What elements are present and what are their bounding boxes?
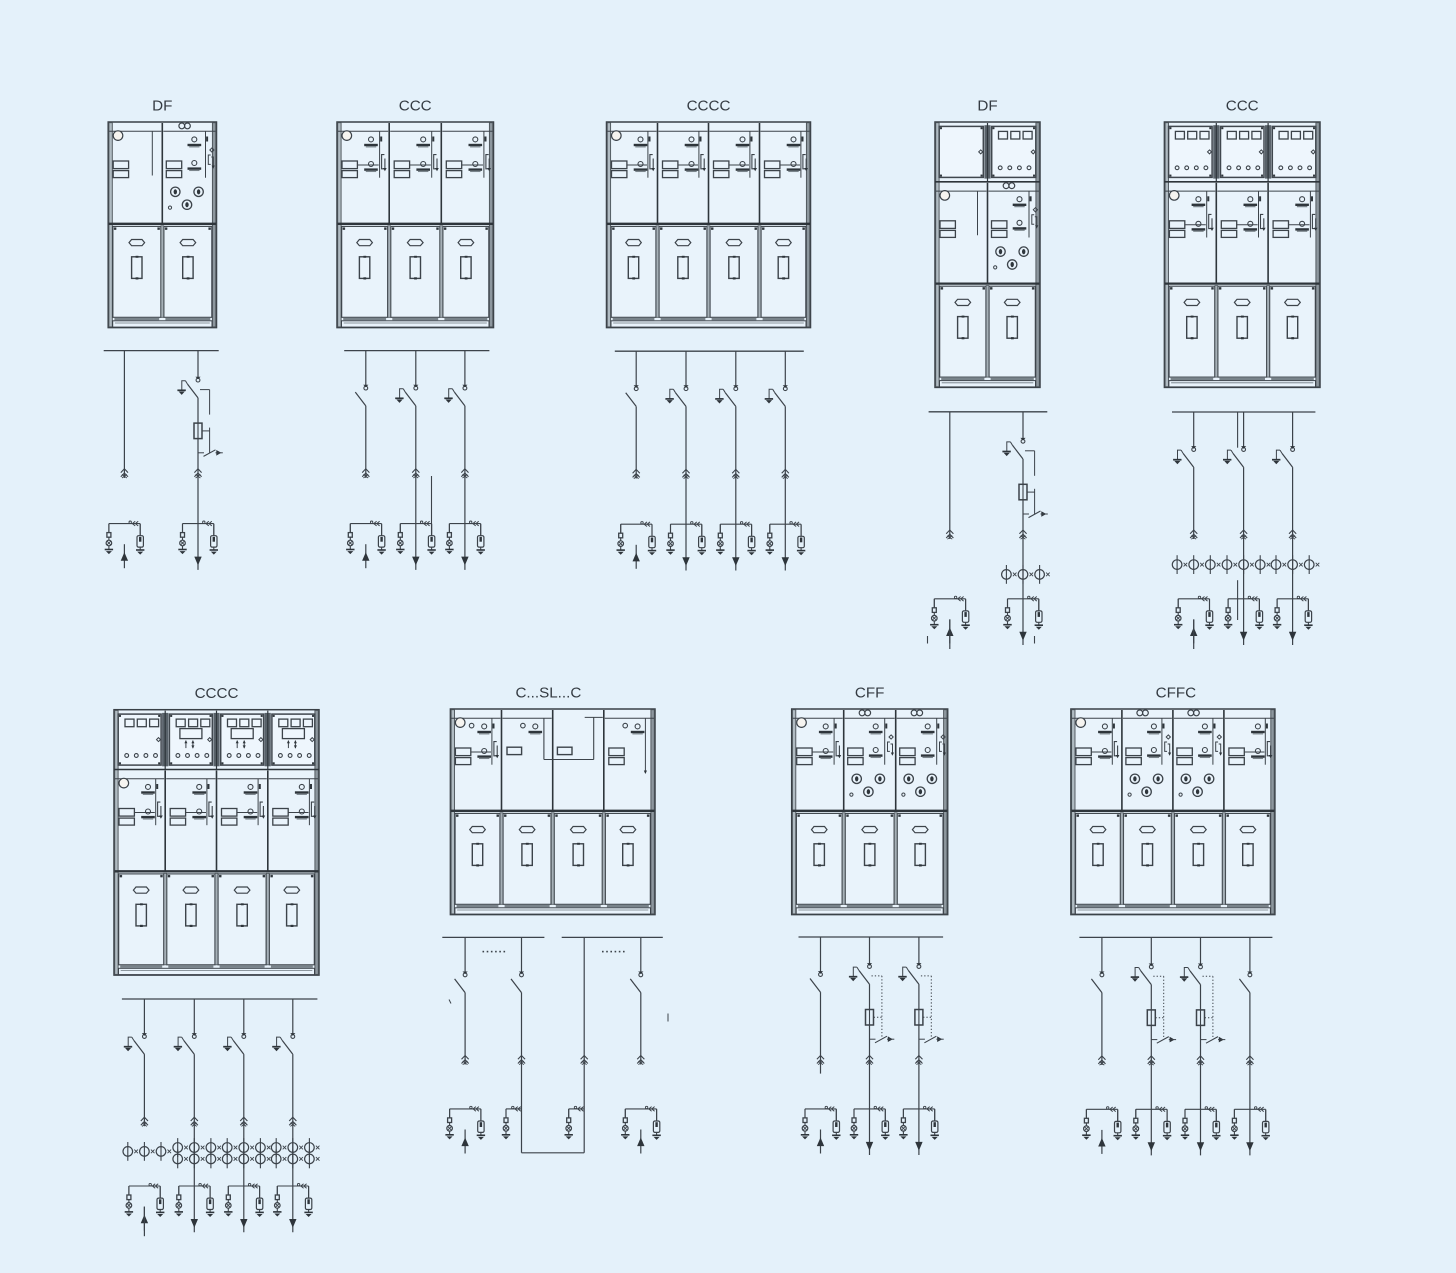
svg-text:CFFC: CFFC [1156, 685, 1197, 702]
svg-text:CCC: CCC [1226, 98, 1259, 115]
svg-text:DF: DF [152, 98, 172, 115]
svg-text:CCCC: CCCC [195, 685, 239, 702]
svg-text:C...SL...C: C...SL...C [515, 685, 581, 702]
svg-text:CCCC: CCCC [687, 98, 731, 115]
svg-text:CFF: CFF [855, 685, 885, 702]
svg-text:CCC: CCC [399, 98, 432, 115]
svg-text:DF: DF [977, 98, 997, 115]
